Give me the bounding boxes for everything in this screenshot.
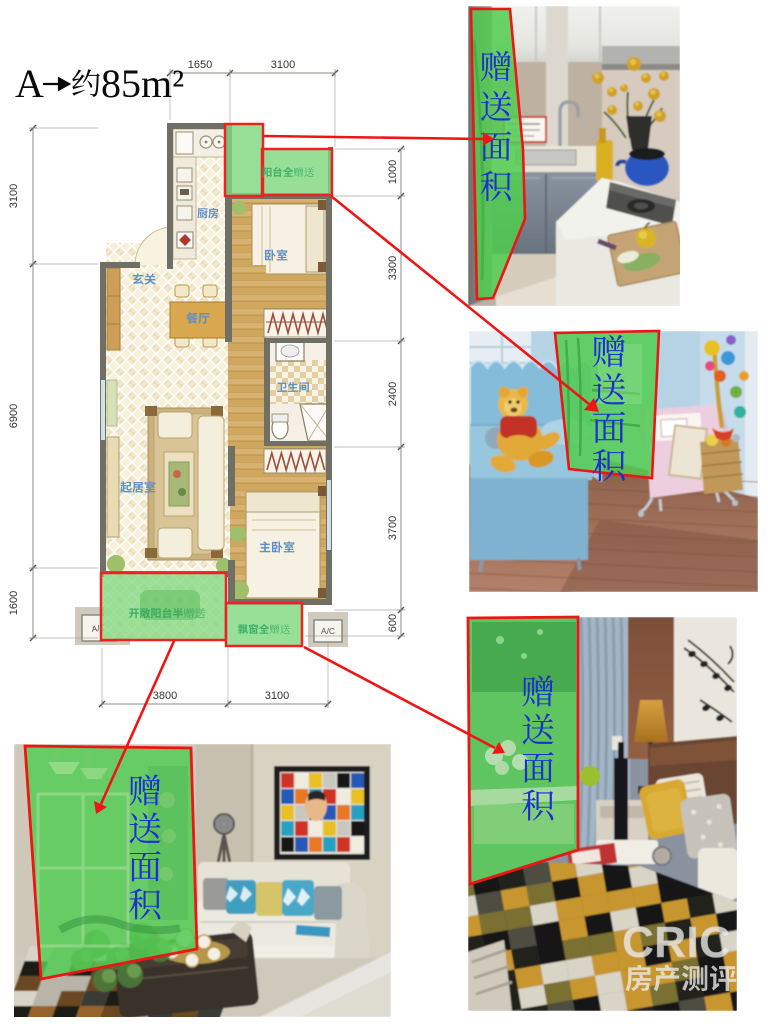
- svg-text:A: A: [15, 61, 44, 106]
- svg-text:3100: 3100: [265, 690, 289, 702]
- svg-text:3100: 3100: [271, 59, 295, 71]
- svg-text:1600: 1600: [8, 591, 20, 615]
- svg-text:3300: 3300: [387, 256, 399, 280]
- svg-text:85m²: 85m²: [101, 61, 184, 106]
- svg-text:600: 600: [387, 614, 399, 632]
- svg-text:1650: 1650: [188, 59, 212, 71]
- svg-text:3700: 3700: [387, 516, 399, 540]
- svg-text:CRIC: CRIC: [622, 918, 732, 967]
- svg-text:A/C: A/C: [321, 626, 335, 636]
- svg-text:2400: 2400: [387, 382, 399, 406]
- svg-text:3800: 3800: [153, 690, 177, 702]
- svg-text:3100: 3100: [8, 184, 20, 208]
- svg-text:6900: 6900: [8, 404, 20, 428]
- svg-text:1000: 1000: [387, 160, 399, 184]
